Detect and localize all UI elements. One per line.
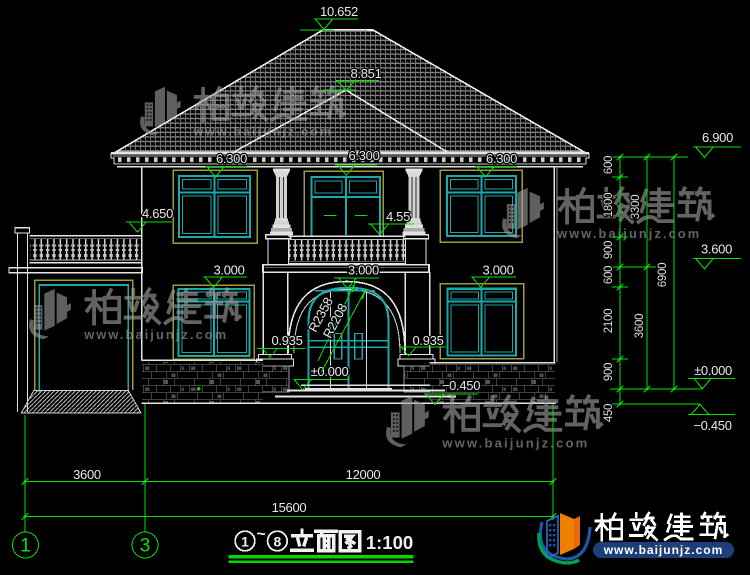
svg-text:600: 600 — [603, 156, 615, 174]
svg-text:1:100: 1:100 — [366, 532, 413, 553]
svg-text:−0.450: −0.450 — [693, 418, 731, 433]
svg-text:1: 1 — [241, 534, 249, 550]
svg-text:2100: 2100 — [603, 309, 615, 333]
svg-text:6900: 6900 — [657, 263, 669, 287]
svg-text:900: 900 — [603, 241, 615, 259]
svg-text:3.000: 3.000 — [213, 263, 244, 278]
svg-text:1: 1 — [20, 536, 31, 557]
svg-text:1800: 1800 — [603, 193, 615, 217]
svg-text:~: ~ — [256, 526, 265, 543]
svg-text:6.300: 6.300 — [216, 151, 247, 166]
svg-text:8: 8 — [274, 534, 282, 550]
svg-text:3.000: 3.000 — [348, 263, 379, 278]
svg-text:www.baijunjz.com: www.baijunjz.com — [603, 543, 724, 557]
svg-text:6.300: 6.300 — [348, 148, 379, 163]
svg-text:±0.000: ±0.000 — [311, 364, 349, 379]
svg-text:4.55: 4.55 — [386, 209, 410, 224]
svg-text:3600: 3600 — [634, 314, 646, 338]
svg-text:15600: 15600 — [272, 500, 307, 515]
svg-text:6.300: 6.300 — [486, 151, 517, 166]
svg-text:0.935: 0.935 — [271, 333, 302, 348]
svg-text:600: 600 — [603, 266, 615, 284]
svg-text:450: 450 — [603, 404, 615, 422]
svg-text:3: 3 — [140, 536, 151, 557]
svg-text:3.000: 3.000 — [482, 263, 513, 278]
svg-text:0.935: 0.935 — [412, 333, 443, 348]
svg-text:10.652: 10.652 — [320, 4, 358, 19]
svg-text:900: 900 — [603, 363, 615, 381]
svg-text:8.851: 8.851 — [350, 66, 381, 81]
svg-text:3600: 3600 — [73, 467, 101, 482]
svg-text:−0.450: −0.450 — [442, 378, 480, 393]
svg-text:12000: 12000 — [346, 467, 381, 482]
svg-text:4.650: 4.650 — [142, 206, 173, 221]
svg-text:3.600: 3.600 — [701, 242, 732, 257]
svg-text:±0.000: ±0.000 — [694, 363, 732, 378]
svg-text:6.900: 6.900 — [702, 130, 733, 145]
svg-text:3300: 3300 — [630, 195, 642, 219]
